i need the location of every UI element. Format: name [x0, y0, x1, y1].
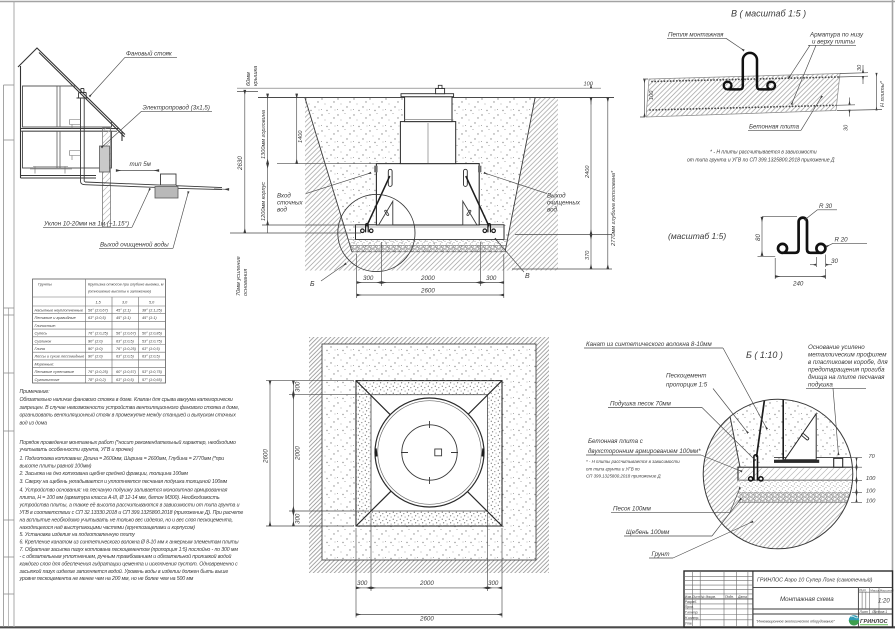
- svg-text:63° (1:0,5): 63° (1:0,5): [142, 355, 161, 359]
- svg-text:90° (1:0): 90° (1:0): [88, 347, 103, 351]
- svg-text:Н.контр.: Н.контр.: [685, 616, 699, 620]
- svg-text:2. Засыпка на дно котлована ще: 2. Засыпка на дно котлована щебня средне…: [19, 470, 189, 477]
- svg-text:на всплытие необходимо учитыв: на всплытие необходимо учитывать не толь…: [20, 518, 233, 524]
- svg-text:Глина: Глина: [35, 347, 45, 351]
- svg-text:Пескоцемент: Пескоцемент: [666, 373, 706, 380]
- svg-text:2000: 2000: [295, 446, 302, 461]
- svg-text:устройства плиты, а также её в: устройства плиты, а также её высота расс…: [19, 502, 240, 509]
- svg-text:вод: вод: [547, 207, 558, 214]
- svg-text:Порядок проведения монтажных р: Порядок проведения монтажных работ (*нос…: [20, 439, 237, 446]
- svg-text:1. Подготовка котлована: Длина: 1. Подготовка котлована: Длина = 2600мм,…: [20, 456, 225, 462]
- svg-text:крышка: крышка: [253, 66, 259, 86]
- svg-text:Утв.: Утв.: [685, 621, 693, 625]
- svg-text:Вход: Вход: [277, 193, 291, 200]
- svg-text:78° (1:0,2): 78° (1:0,2): [88, 378, 107, 382]
- svg-text:90° (1:0): 90° (1:0): [88, 355, 103, 359]
- svg-text:Песок 100мм: Песок 100мм: [613, 505, 652, 512]
- svg-text:45° (1:1): 45° (1:1): [116, 309, 131, 313]
- svg-text:Н плиты*: Н плиты*: [880, 80, 886, 107]
- svg-text:каждого слоя для обеспечения г: каждого слоя для обеспечения гидратации …: [20, 561, 239, 567]
- svg-text:7. Обратная засыпка пазух котл: 7. Обратная засыпка пазух котлована песк…: [20, 546, 239, 553]
- svg-text:38° (1:1,25): 38° (1:1,25): [142, 309, 163, 313]
- svg-text:R 20: R 20: [835, 237, 849, 244]
- svg-text:60° (1:0,57): 60° (1:0,57): [116, 370, 137, 374]
- svg-text:Бетонная плита с: Бетонная плита с: [588, 438, 644, 445]
- svg-text:подушка: подушка: [808, 382, 833, 389]
- svg-text:Щебень 100мм: Щебень 100мм: [626, 529, 670, 536]
- svg-text:2400: 2400: [585, 165, 591, 179]
- svg-text:63° (1:0,5): 63° (1:0,5): [116, 339, 135, 343]
- svg-text:63° (1:0,5): 63° (1:0,5): [116, 355, 135, 359]
- svg-text:Суглинок: Суглинок: [35, 339, 52, 343]
- svg-text:1300мм горловина: 1300мм горловина: [261, 110, 267, 159]
- svg-text:1400: 1400: [298, 130, 304, 143]
- svg-text:Глинистые:: Глинистые:: [35, 324, 56, 328]
- svg-text:90° (1:0): 90° (1:0): [88, 339, 103, 343]
- svg-text:6. Крепление канатом из синтет: 6. Крепление канатом из синтетического в…: [20, 540, 239, 546]
- svg-text:запрещен. В случае невозможнос: запрещен. В случае невозможности устройс…: [19, 404, 240, 411]
- svg-text:днища на плите песчаная: днища на плите песчаная: [808, 374, 885, 381]
- svg-text:Выход очищенной воды: Выход очищенной воды: [100, 242, 169, 249]
- svg-text:Б ( 1:10 ): Б ( 1:10 ): [746, 350, 783, 360]
- svg-text:240: 240: [792, 281, 804, 288]
- svg-text:Подп.: Подп.: [725, 595, 734, 599]
- svg-text:56° (1:0,67): 56° (1:0,67): [88, 309, 109, 313]
- svg-text:63° (1:0,5): 63° (1:0,5): [88, 316, 107, 320]
- svg-text:63° (1:0,5): 63° (1:0,5): [142, 347, 161, 351]
- svg-text:Уклон 10-20мм на 1м (~1.15°): Уклон 10-20мм на 1м (~1.15°): [43, 221, 129, 228]
- svg-text:вод: вод: [277, 207, 288, 214]
- svg-text:Песчаные и гравийные: Песчаные и гравийные: [35, 316, 76, 320]
- svg-text:Выход: Выход: [547, 193, 566, 200]
- svg-text:Арматура по низу: Арматура по низу: [809, 32, 864, 39]
- svg-text:и верху плиты: и верху плиты: [812, 39, 855, 46]
- svg-text:Канат из синтетического волокн: Канат из синтетического волокна 8-10мм: [586, 341, 713, 348]
- svg-text:Т.контр.: Т.контр.: [685, 611, 699, 615]
- svg-text:30: 30: [844, 124, 850, 131]
- svg-text:100: 100: [866, 476, 876, 482]
- svg-text:300: 300: [357, 580, 368, 587]
- svg-text:засыпкой пазух изделие заполня: засыпкой пазух изделие заполняется водой…: [19, 568, 229, 575]
- svg-text:от типа грунта и УГВ по СП 399: от типа грунта и УГВ по СП 399.1325800.2…: [687, 158, 835, 164]
- svg-text:4. Устройство основания: на пе: 4. Устройство основания: на песчаную под…: [20, 487, 228, 494]
- svg-text:уровня пескоцемента не менее ч: уровня пескоцемента не менее чем на 200 …: [19, 576, 194, 582]
- svg-text:- с обязательным уплотнением,: - с обязательным уплотнением, ручным тра…: [20, 553, 232, 560]
- svg-text:очищенных: очищенных: [547, 200, 581, 207]
- svg-text:(отношение высоты к заложению): (отношение высоты к заложению): [88, 290, 152, 294]
- svg-text:предотвращения прогиба: предотвращения прогиба: [808, 367, 885, 374]
- svg-text:металлическим профилем: металлическим профилем: [808, 352, 887, 359]
- svg-text:100: 100: [649, 90, 655, 100]
- svg-text:Моренные:: Моренные:: [35, 362, 55, 366]
- svg-text:2600: 2600: [420, 288, 435, 295]
- svg-text:Бетонная плита: Бетонная плита: [749, 124, 800, 131]
- svg-text:учитывать особенности грунта,: учитывать особенности грунта, УГВ и проч…: [19, 447, 134, 453]
- svg-text:300: 300: [486, 275, 497, 282]
- svg-text:* - Н плиты рассчитывается в з: * - Н плиты рассчитывается в зависимости: [710, 150, 817, 156]
- svg-text:плита, Н = 100 мм (арматура кл: плита, Н = 100 мм (арматура класса А-III…: [20, 495, 220, 501]
- svg-text:300: 300: [295, 513, 302, 524]
- svg-text:R 30: R 30: [819, 203, 833, 210]
- svg-text:3,0: 3,0: [122, 301, 128, 305]
- svg-text:76° (1:0,25): 76° (1:0,25): [88, 370, 109, 374]
- svg-text:2000: 2000: [420, 275, 435, 282]
- svg-text:2000: 2000: [419, 580, 434, 587]
- svg-text:70мм усиление: 70мм усиление: [236, 256, 242, 296]
- svg-text:2600: 2600: [263, 449, 270, 464]
- svg-text:1200мм корпус: 1200мм корпус: [261, 182, 267, 221]
- svg-text:Разраб.: Разраб.: [685, 600, 697, 604]
- svg-text:тип 5м: тип 5м: [130, 161, 152, 168]
- svg-text:Обязательно наличие фанового с: Обязательно наличие фанового стояка в до…: [20, 397, 233, 403]
- svg-text:50° (1:0,85): 50° (1:0,85): [142, 332, 163, 336]
- svg-text:60мм: 60мм: [246, 72, 252, 86]
- svg-text:2770мм глубина котлована*: 2770мм глубина котлована*: [611, 170, 617, 247]
- svg-text:Изм.Лист: Изм.Лист: [685, 595, 701, 599]
- svg-text:Насыпные неуплотненные: Насыпные неуплотненные: [35, 309, 83, 313]
- svg-text:Грунты: Грунты: [38, 283, 52, 287]
- svg-text:Песчаные супесчаные: Песчаные супесчаные: [35, 370, 74, 374]
- svg-text:Крутизна откосов при глубине в: Крутизна откосов при глубине выемки, м: [88, 283, 164, 287]
- svg-text:Б: Б: [310, 281, 315, 288]
- svg-text:300: 300: [488, 580, 499, 587]
- svg-text:1,5: 1,5: [96, 301, 102, 305]
- svg-text:В: В: [525, 273, 530, 280]
- svg-text:УГВ в соответствии с СП 32.133: УГВ в соответствии с СП 32.13330.2018 и …: [20, 510, 244, 516]
- svg-text:2600: 2600: [419, 616, 434, 623]
- svg-text:(масштаб 1:5): (масштаб 1:5): [668, 231, 726, 241]
- svg-text:Лессы и сухие лессовидные: Лессы и сухие лессовидные: [34, 355, 85, 359]
- svg-text:53° (1:0,75): 53° (1:0,75): [142, 339, 163, 343]
- svg-text:В ( масштаб 1:5 ): В ( масштаб 1:5 ): [731, 9, 806, 19]
- svg-text:45° (1:1): 45° (1:1): [142, 316, 157, 320]
- svg-text:Листов 1: Листов 1: [871, 610, 887, 614]
- svg-text:2630: 2630: [237, 156, 244, 171]
- svg-text:45° (1:1): 45° (1:1): [116, 316, 131, 320]
- svg-text:Электропровод (3х1,5): Электропровод (3х1,5): [143, 105, 210, 112]
- svg-text:57° (1:0,65): 57° (1:0,65): [142, 378, 163, 382]
- svg-text:Супесь: Супесь: [35, 332, 48, 336]
- svg-text:сточных: сточных: [277, 200, 304, 207]
- svg-text:300: 300: [295, 381, 302, 392]
- svg-text:76° (1:0,25): 76° (1:0,25): [116, 347, 137, 351]
- svg-text:70: 70: [869, 454, 876, 460]
- svg-text:от типа грунта и УГВ по: от типа грунта и УГВ по: [586, 466, 640, 471]
- svg-text:5. Установка изделия на подгот: 5. Установка изделия на подготовленную п…: [20, 532, 136, 538]
- svg-text:3. Сверху на щебень укладывает: 3. Сверху на щебень укладывается и уплот…: [20, 478, 228, 485]
- svg-text:370: 370: [585, 250, 591, 260]
- svg-text:высоте плиты равной 100мм): высоте плиты равной 100мм): [20, 462, 92, 469]
- svg-text:№ докум.: № докум.: [701, 595, 716, 599]
- svg-text:Пров.: Пров.: [685, 605, 694, 609]
- svg-text:Масса: Масса: [870, 588, 879, 592]
- svg-text:Дата: Дата: [737, 595, 747, 599]
- svg-text:находящегося над выступающими: находящегося над выступающими частями (г…: [20, 525, 196, 531]
- svg-text:* - Н плиты рассчитывается в з: * - Н плиты рассчитывается в зависимости: [586, 459, 680, 464]
- svg-text:Фановый стояк: Фановый стояк: [126, 51, 173, 58]
- svg-text:основания: основания: [243, 269, 249, 296]
- svg-text:300: 300: [363, 275, 374, 282]
- svg-text:Масштаб: Масштаб: [880, 588, 894, 592]
- svg-text:100: 100: [866, 499, 876, 505]
- svg-text:30: 30: [857, 64, 863, 71]
- svg-text:Лист: Лист: [859, 610, 869, 614]
- svg-text:56° (1:0,67): 56° (1:0,67): [116, 332, 137, 336]
- svg-text:организовать вентиляционный ст: организовать вентиляционный стояк в пром…: [20, 412, 237, 419]
- svg-text:в пластиковом коробе, для: в пластиковом коробе, для: [808, 359, 888, 366]
- svg-text:Петля монтажная: Петля монтажная: [668, 32, 724, 39]
- svg-text:100: 100: [584, 82, 594, 88]
- svg-text:ГРИНЛОС Аэро 10 Супер Лонг (са: ГРИНЛОС Аэро 10 Супер Лонг (самотечный): [757, 577, 873, 584]
- svg-text:Подушка песок 70мм: Подушка песок 70мм: [610, 401, 672, 408]
- svg-text:Лит.: Лит.: [858, 588, 867, 592]
- svg-text:Грунт: Грунт: [652, 551, 670, 558]
- svg-text:двухсторонним армированием 100: двухсторонним армированием 100мм*: [588, 448, 701, 455]
- svg-text:100: 100: [866, 489, 876, 495]
- svg-text:76° (1:0,25): 76° (1:0,25): [88, 332, 109, 336]
- svg-text:Примечание:: Примечание:: [20, 389, 51, 395]
- svg-text:80: 80: [755, 234, 762, 241]
- svg-text:53° (1:0,75): 53° (1:0,75): [142, 370, 163, 374]
- svg-text:Основание усилено: Основание усилено: [808, 344, 865, 351]
- svg-text:ГРИНЛОС: ГРИНЛОС: [860, 619, 889, 625]
- svg-text:5,0: 5,0: [149, 301, 155, 305]
- svg-text:Монтажная схема: Монтажная схема: [780, 596, 834, 603]
- svg-text:вод из дома: вод из дома: [20, 420, 48, 426]
- svg-text:Суглинистые: Суглинистые: [35, 378, 60, 382]
- svg-text:СП 399.1325800.2018 приложение: СП 399.1325800.2018 приложение Д: [586, 474, 661, 479]
- svg-text:пропорция 1:5: пропорция 1:5: [666, 382, 708, 389]
- svg-text:30: 30: [831, 258, 838, 265]
- svg-text:63° (1:0,5): 63° (1:0,5): [116, 378, 135, 382]
- svg-text:1:20: 1:20: [878, 599, 890, 605]
- svg-text:"Инновационное экологическое о: "Инновационное экологическое оборудовани…: [756, 620, 836, 624]
